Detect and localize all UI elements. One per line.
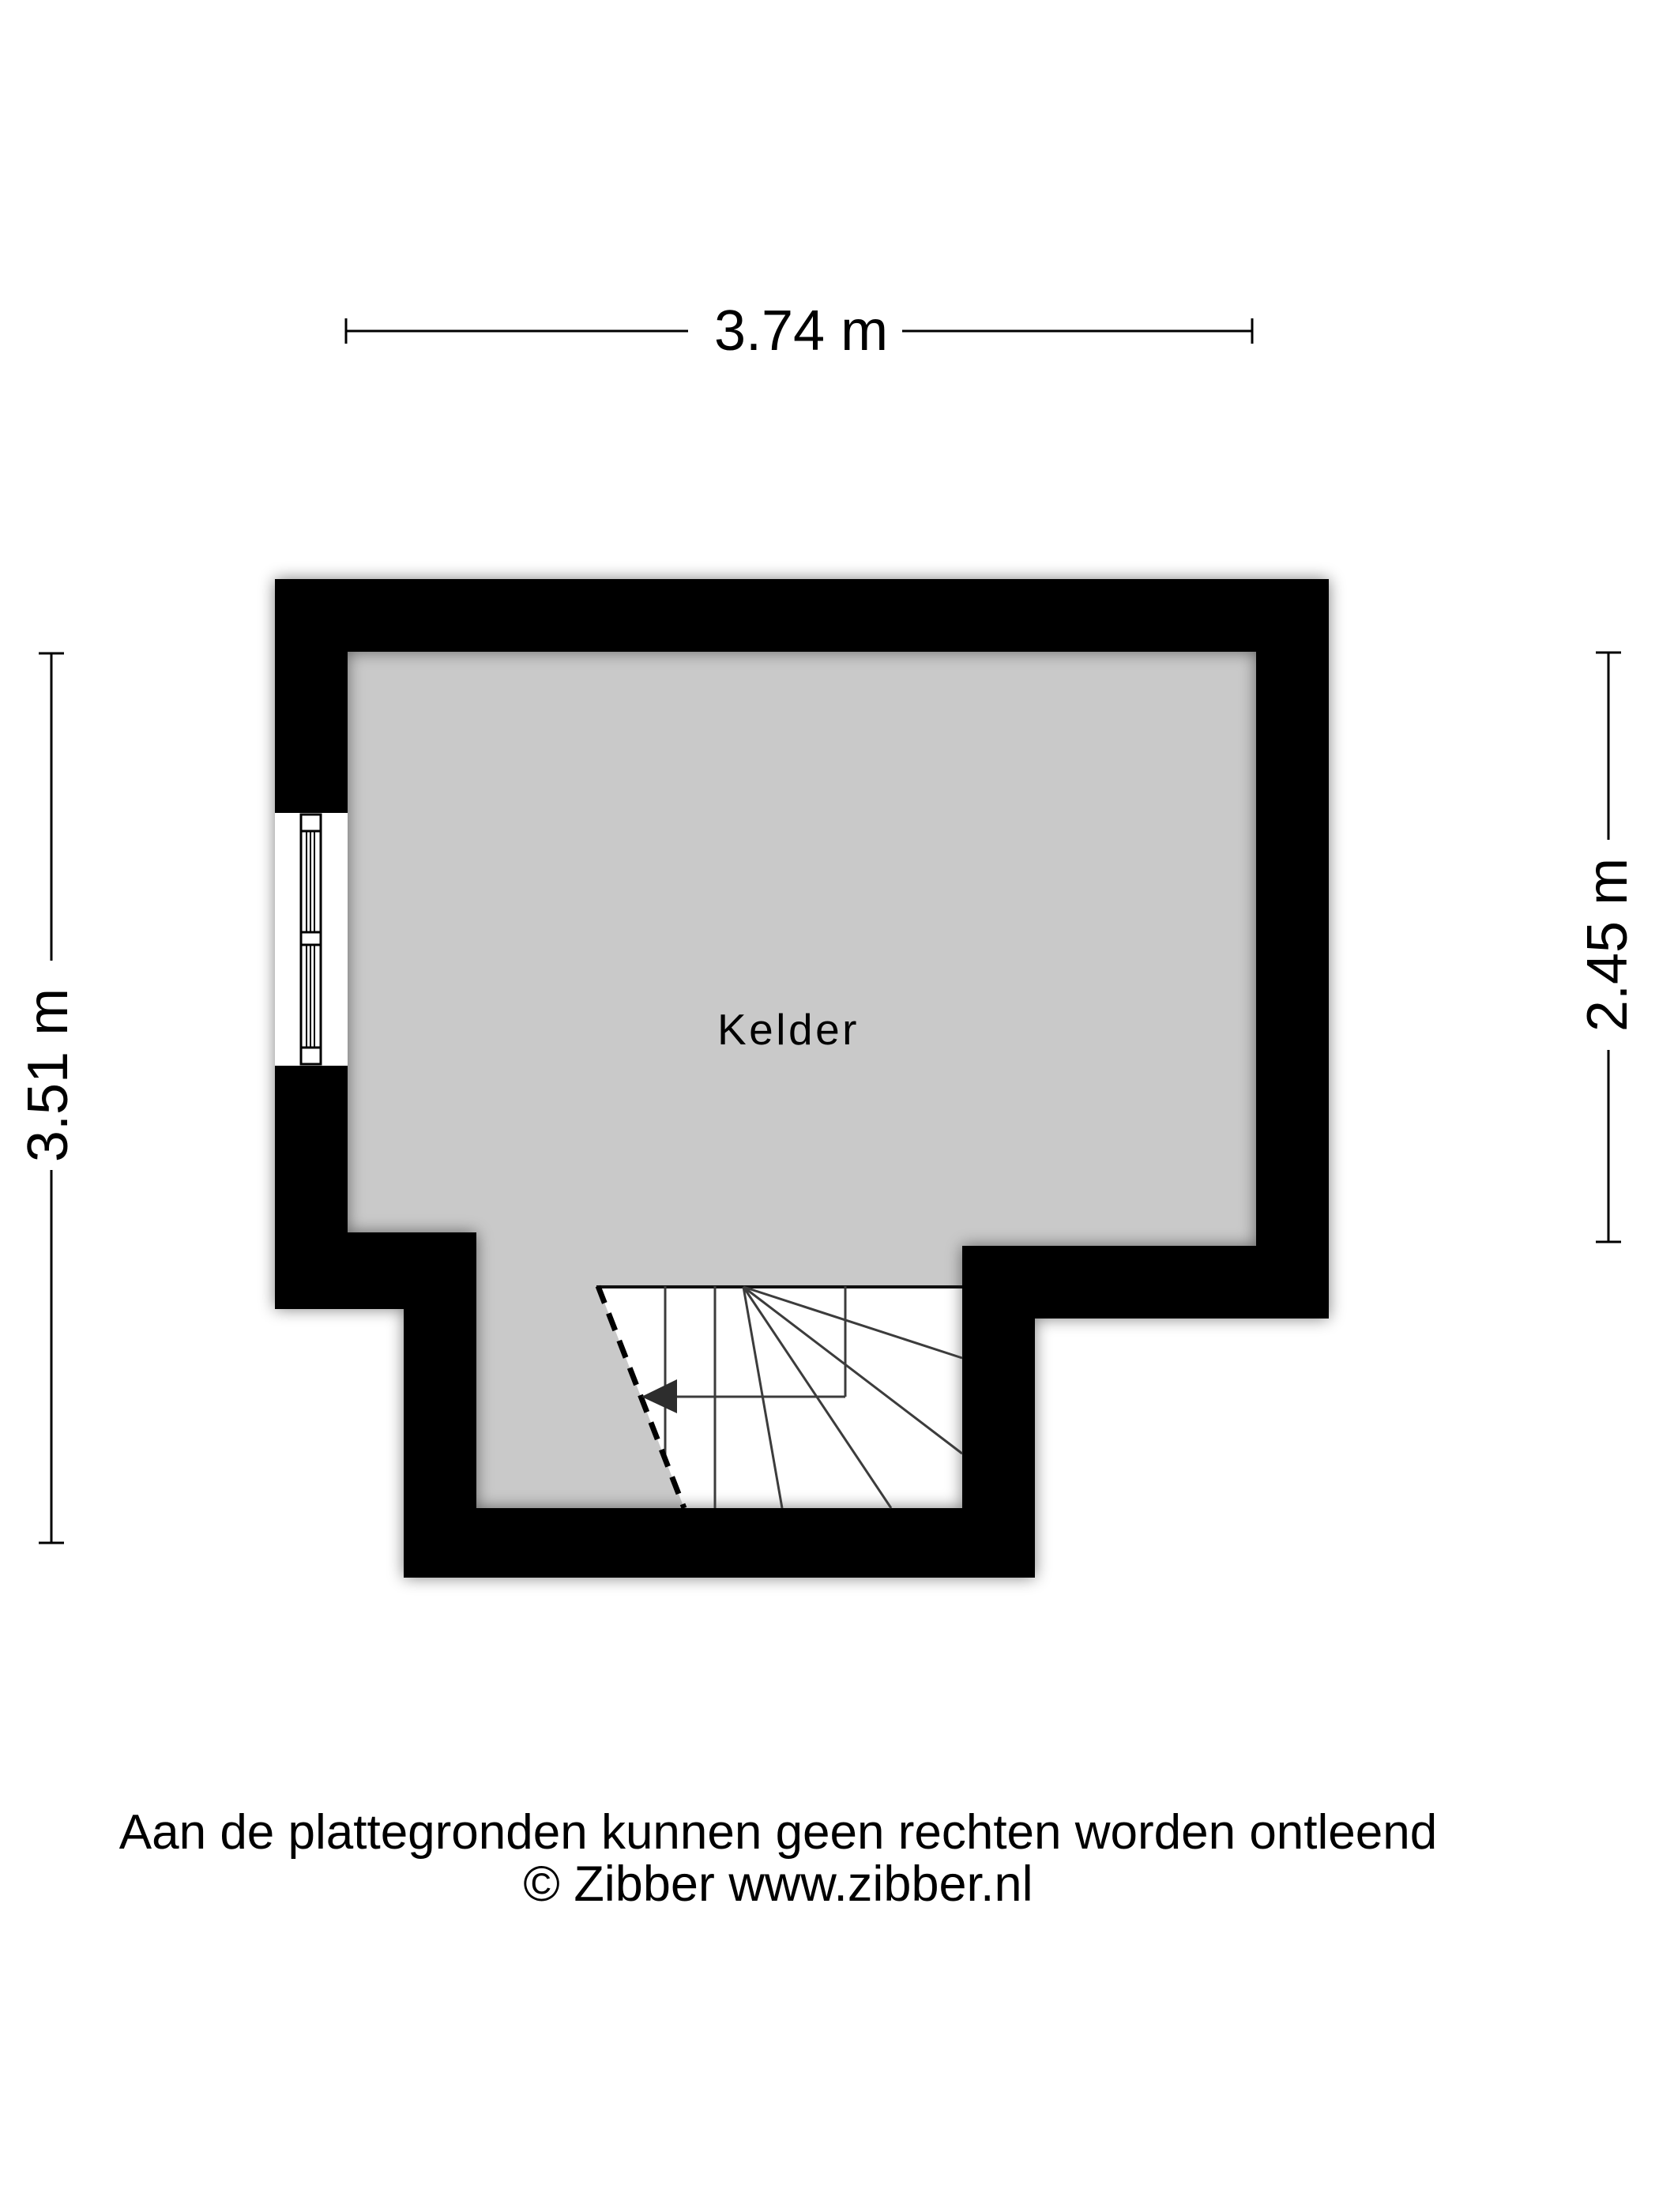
svg-text:© Zibber www.zibber.nl: © Zibber www.zibber.nl — [523, 1856, 1033, 1912]
svg-text:3.51 m: 3.51 m — [17, 988, 80, 1162]
svg-text:2.45 m: 2.45 m — [1576, 858, 1639, 1032]
svg-text:Aan de plattegronden kunnen ge: Aan de plattegronden kunnen geen rechten… — [119, 1805, 1437, 1860]
svg-text:Kelder: Kelder — [717, 1005, 860, 1054]
svg-text:3.74 m: 3.74 m — [714, 299, 888, 363]
